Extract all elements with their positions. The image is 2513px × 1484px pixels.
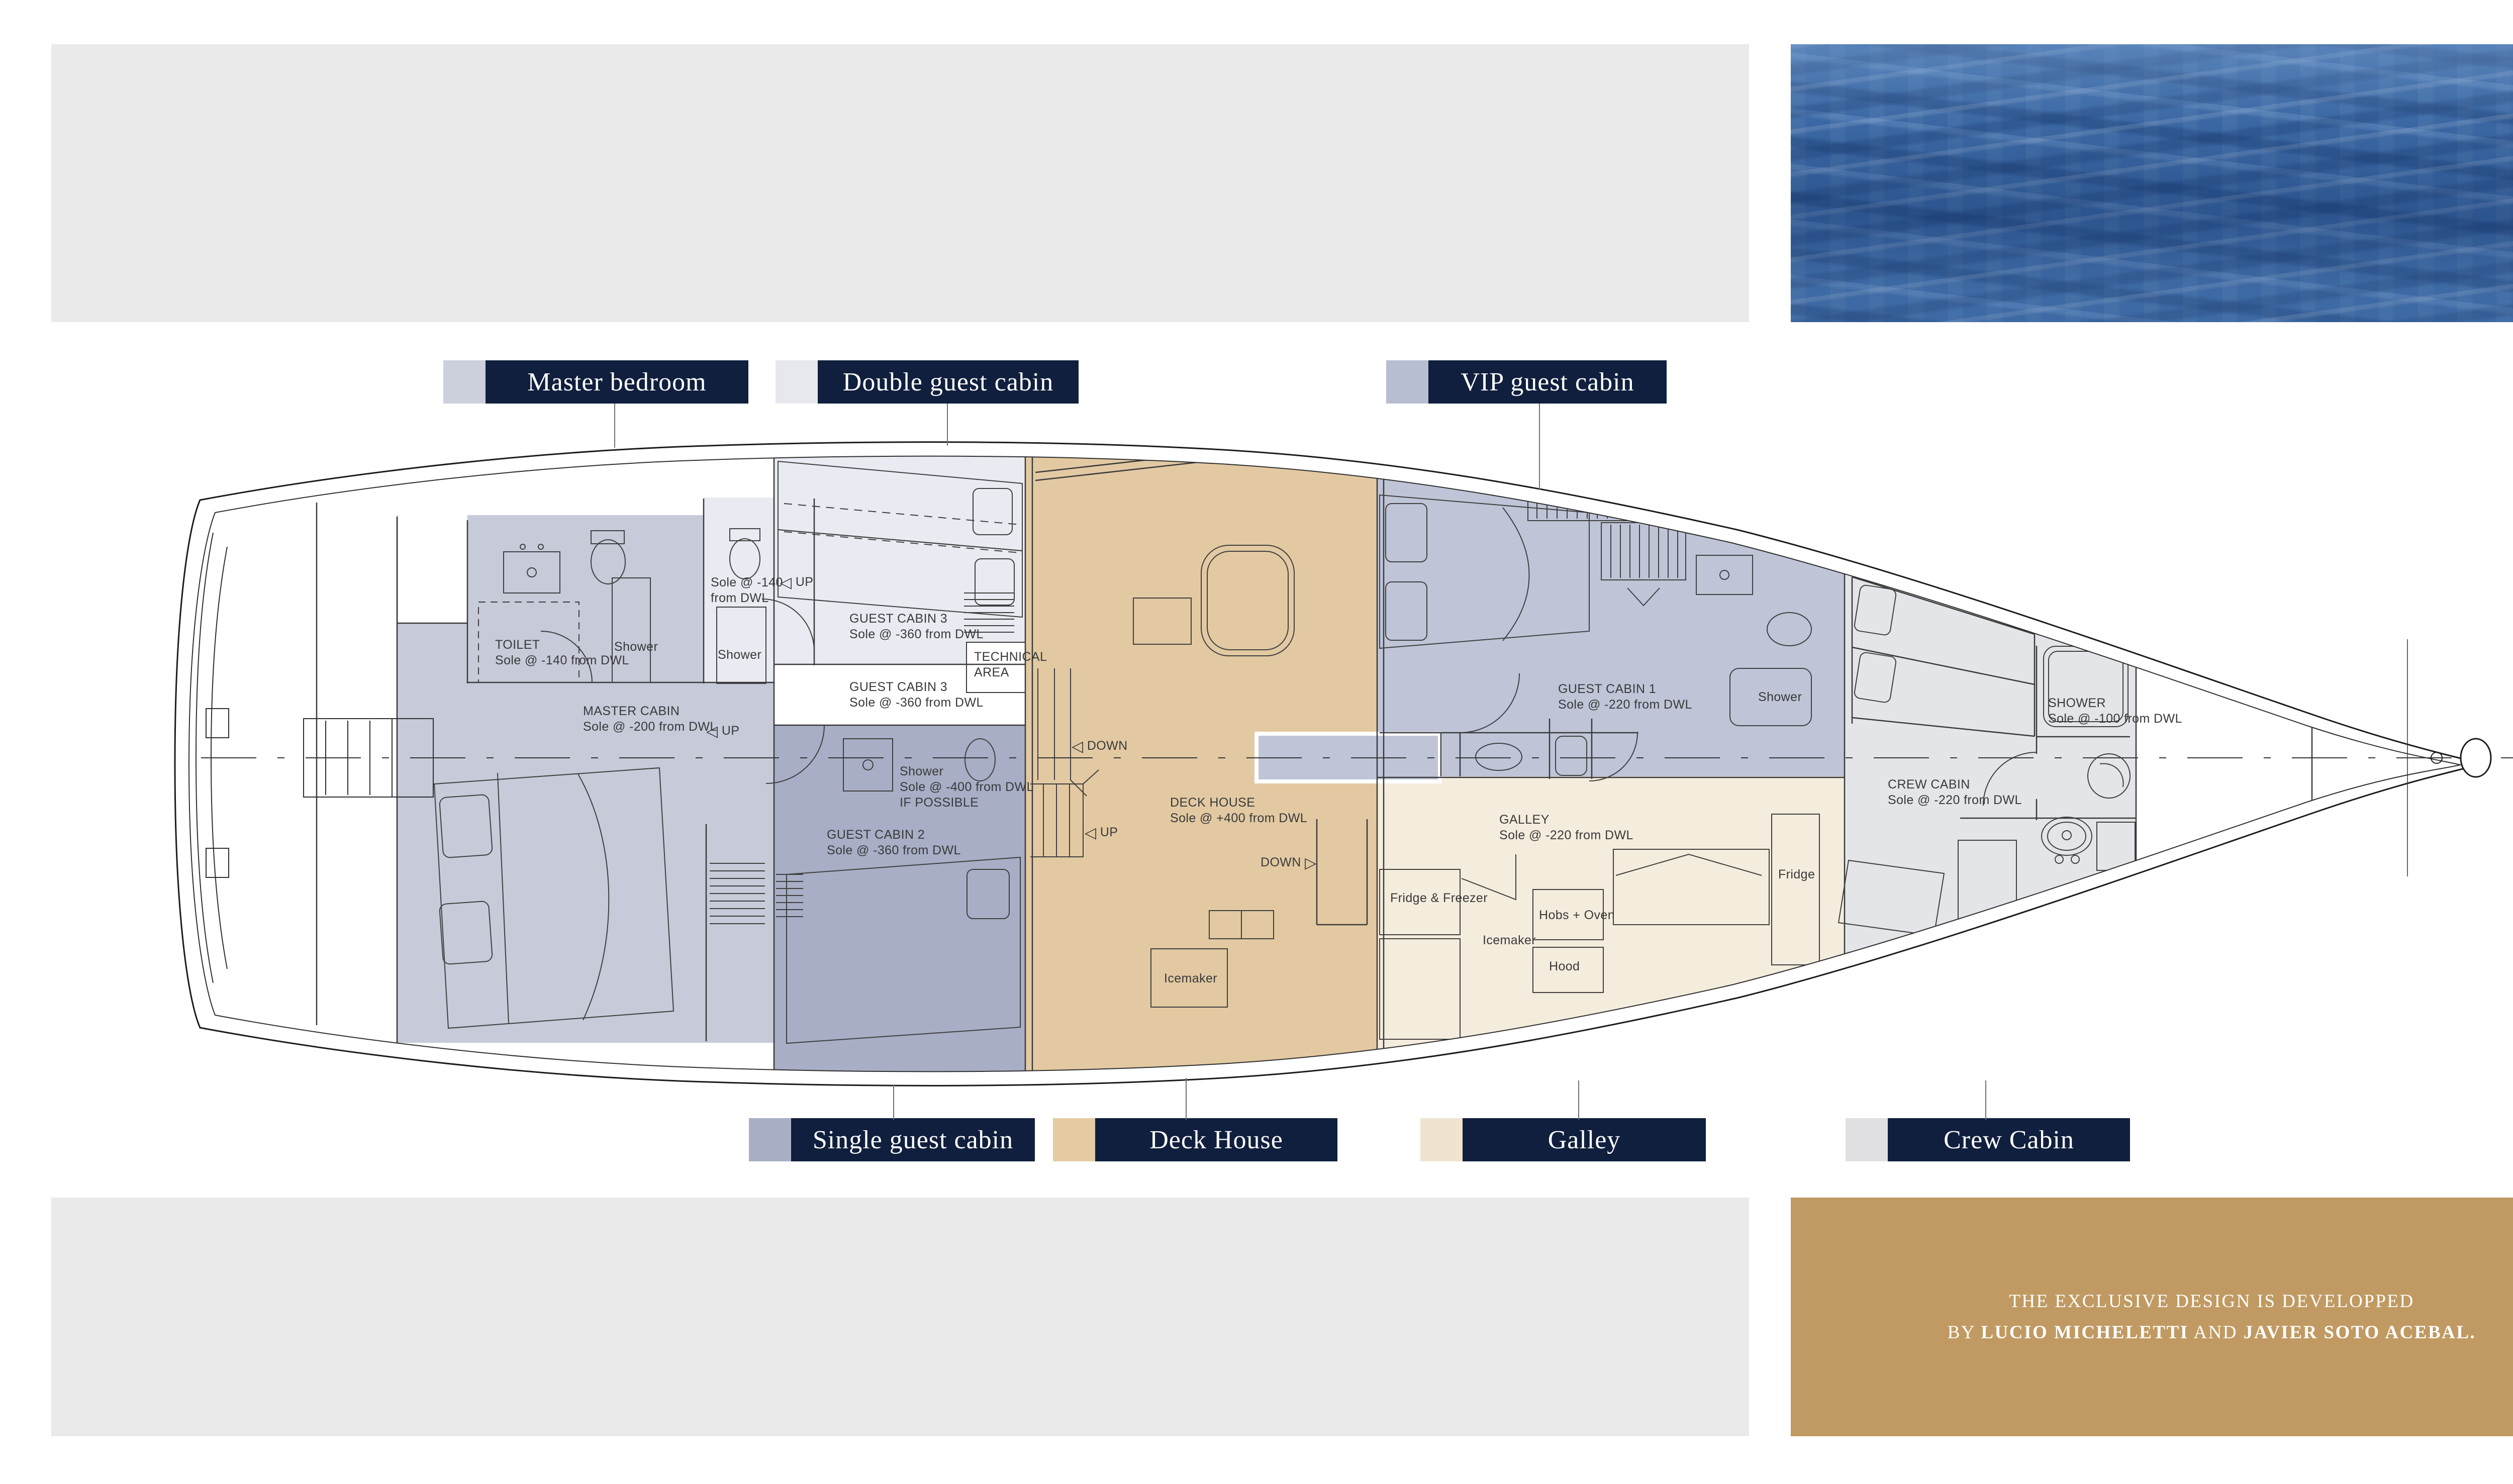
label-shower-vip: Shower bbox=[1758, 689, 1802, 705]
leader-crew bbox=[1985, 1080, 1986, 1120]
legend-label-master: Master bedroom bbox=[486, 360, 748, 404]
label-shower-master-right: Shower bbox=[718, 647, 761, 663]
label-shower-master-left: Shower bbox=[614, 639, 658, 655]
left-triangle-icon: ◁ bbox=[780, 574, 792, 591]
legend-single-guest-cabin: Single guest cabin bbox=[749, 1118, 1035, 1161]
label-guest-cabin-2: GUEST CABIN 2Sole @ -360 from DWL bbox=[827, 827, 961, 858]
floor-plan bbox=[0, 0, 2513, 1484]
up-arrow-master: ◁ UP bbox=[706, 723, 739, 740]
up-arrow-cabin3: ◁ UP bbox=[780, 574, 813, 591]
legend-chip-double bbox=[776, 360, 818, 404]
page-canvas: THE EXCLUSIVE DESIGN IS DEVELOPPED BY LU… bbox=[0, 0, 2513, 1484]
galley-stair-corridor bbox=[1317, 819, 1367, 925]
label-sole-140: Sole @ -140from DWL bbox=[711, 575, 783, 606]
legend-galley: Galley bbox=[1420, 1118, 1706, 1161]
label-guest-cabin-3-corridor: GUEST CABIN 3Sole @ -360 from DWL bbox=[849, 679, 984, 711]
label-fridge: Fridge bbox=[1778, 867, 1815, 882]
legend-chip-deck-house bbox=[1053, 1118, 1095, 1161]
label-master-toilet: TOILETSole @ -140 from DWL bbox=[495, 637, 629, 668]
label-crew-shower: SHOWERSole @ -100 from DWL bbox=[2048, 696, 2182, 727]
leader-single bbox=[893, 1084, 894, 1120]
legend-label-vip: VIP guest cabin bbox=[1428, 360, 1667, 404]
legend-chip-single bbox=[749, 1118, 791, 1161]
label-galley: GALLEYSole @ -220 from DWL bbox=[1499, 812, 1633, 843]
legend-label-galley: Galley bbox=[1463, 1118, 1706, 1161]
down-arrow-deck-right: DOWN ▷ bbox=[1261, 854, 1317, 872]
legend-chip-galley bbox=[1420, 1118, 1463, 1161]
label-fridge-freezer: Fridge & Freezer bbox=[1390, 891, 1488, 906]
leader-galley bbox=[1578, 1080, 1579, 1120]
label-technical-area: TECHNICALAREA bbox=[974, 649, 1047, 680]
leader-double bbox=[947, 404, 948, 446]
label-hood: Hood bbox=[1549, 959, 1580, 974]
label-shower-cabin2: ShowerSole @ -400 from DWLIF POSSIBLE bbox=[900, 764, 1034, 811]
label-crew-cabin: CREW CABINSole @ -220 from DWL bbox=[1888, 777, 2022, 808]
legend-label-single: Single guest cabin bbox=[791, 1118, 1035, 1161]
legend-label-deck-house: Deck House bbox=[1095, 1118, 1337, 1161]
right-triangle-icon: ▷ bbox=[1305, 855, 1316, 871]
label-icemaker-galley: Icemaker bbox=[1483, 933, 1536, 948]
up-arrow-deck-lower: ◁ UP bbox=[1085, 824, 1118, 842]
legend-label-double: Double guest cabin bbox=[818, 360, 1079, 404]
left-triangle-icon: ◁ bbox=[1072, 738, 1083, 755]
legend-chip-crew bbox=[1846, 1118, 1888, 1161]
legend-crew-cabin: Crew Cabin bbox=[1846, 1118, 2130, 1161]
left-triangle-icon: ◁ bbox=[706, 723, 718, 740]
legend-master-bedroom: Master bedroom bbox=[443, 360, 748, 404]
label-hobs-oven: Hobs + Oven bbox=[1539, 908, 1615, 923]
legend-double-guest-cabin: Double guest cabin bbox=[776, 360, 1079, 404]
label-deck-house: DECK HOUSESole @ +400 from DWL bbox=[1170, 795, 1307, 826]
legend-chip-master bbox=[443, 360, 486, 404]
legend-vip-guest-cabin: VIP guest cabin bbox=[1386, 360, 1667, 404]
leader-deck-house bbox=[1186, 1078, 1187, 1120]
left-triangle-icon: ◁ bbox=[1085, 825, 1096, 841]
master-locker bbox=[398, 473, 467, 624]
legend-chip-vip bbox=[1386, 360, 1428, 404]
forestay-fitting bbox=[2461, 739, 2491, 777]
down-arrow-deck-upper: ◁ DOWN bbox=[1072, 738, 1128, 755]
legend-deck-house: Deck House bbox=[1053, 1118, 1337, 1161]
label-master-cabin: MASTER CABINSole @ -200 from DWL bbox=[583, 704, 717, 735]
label-icemaker-deck: Icemaker bbox=[1164, 971, 1217, 986]
leader-master bbox=[614, 404, 615, 448]
label-guest-cabin-3-upper: GUEST CABIN 3Sole @ -360 from DWL bbox=[849, 611, 984, 642]
legend-label-crew: Crew Cabin bbox=[1888, 1118, 2130, 1161]
room-fills bbox=[397, 436, 2136, 1092]
leader-vip bbox=[1539, 404, 1540, 490]
label-guest-cabin-1: GUEST CABIN 1Sole @ -220 from DWL bbox=[1558, 681, 1692, 713]
